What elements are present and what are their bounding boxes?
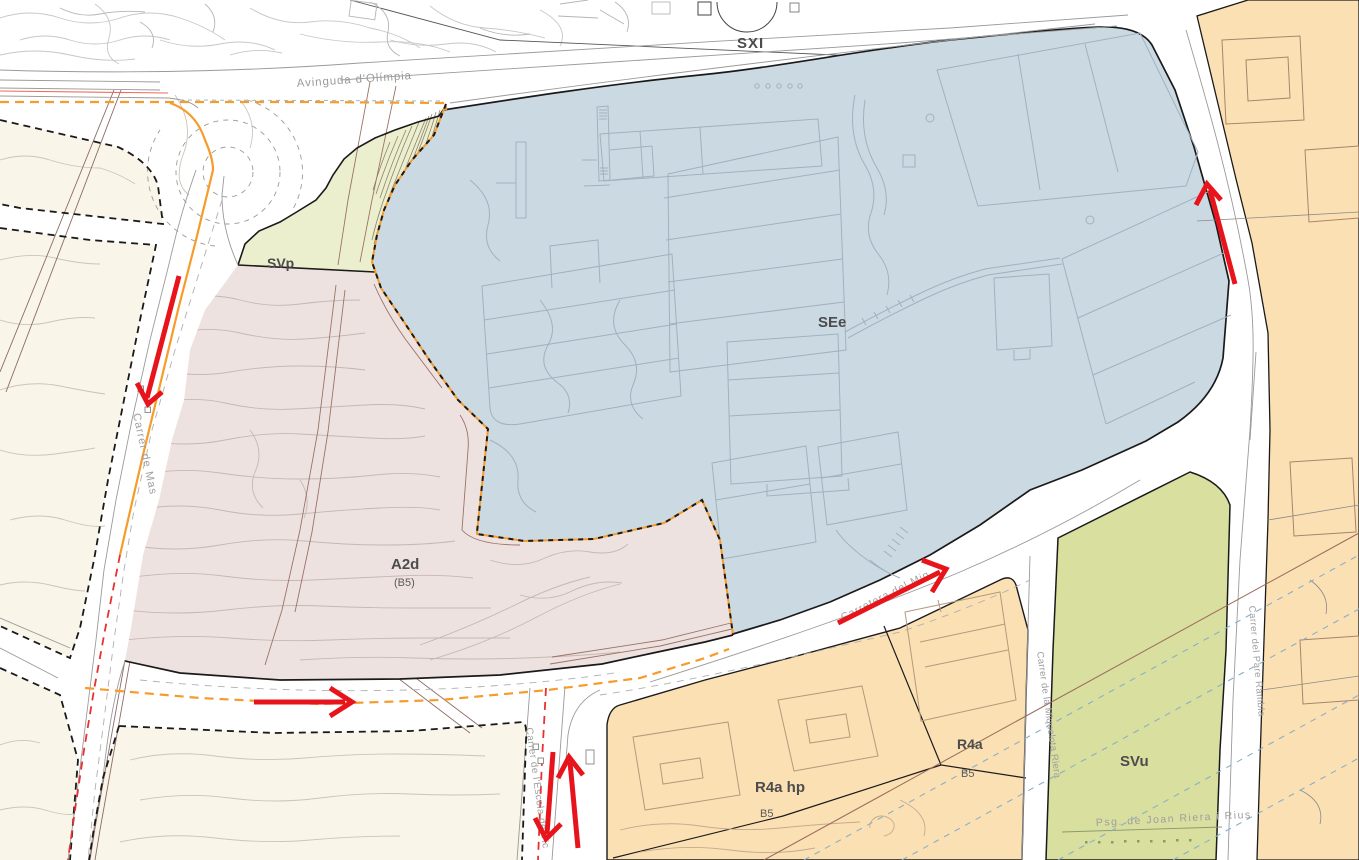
svg-text:A2d: A2d xyxy=(391,556,419,573)
svg-text:SXI: SXI xyxy=(737,35,764,52)
svg-text:SVp: SVp xyxy=(267,255,294,271)
svg-text:R4a hp: R4a hp xyxy=(755,779,805,796)
svg-text:SVu: SVu xyxy=(1120,753,1149,770)
svg-text:B5: B5 xyxy=(961,768,974,780)
svg-text:B5: B5 xyxy=(760,808,773,820)
svg-text:(B5): (B5) xyxy=(394,577,415,589)
svg-text:R4a: R4a xyxy=(957,736,983,752)
svg-text:SEe: SEe xyxy=(818,314,846,331)
